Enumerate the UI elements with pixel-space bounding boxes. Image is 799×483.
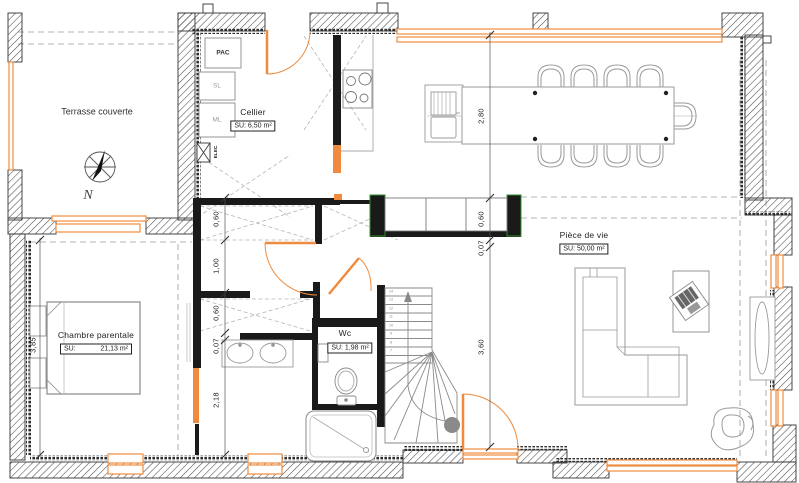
dining-table xyxy=(427,87,697,144)
room-label-cellier: Cellier xyxy=(240,107,266,117)
area-badge-bedroom: SU: 21,13 m² xyxy=(60,344,132,355)
stair-tread-number: 13 xyxy=(389,298,393,302)
burner xyxy=(360,94,368,102)
dim-wall-r: 0,07 xyxy=(477,240,486,256)
pac-label: PAC xyxy=(216,50,229,57)
plan-graphics xyxy=(0,0,799,483)
armchair-sketch xyxy=(711,408,753,450)
dim-bath: 2,18 xyxy=(212,392,221,408)
stair-tread-number: 14 xyxy=(389,290,393,294)
nightstand xyxy=(30,358,46,388)
kitchen-sliding-door xyxy=(333,145,341,173)
tv-screen xyxy=(755,302,769,374)
nightstand xyxy=(30,306,46,336)
burner xyxy=(359,73,371,85)
area-badge-living: SU: 50,00 m² xyxy=(559,244,608,255)
wardrobe xyxy=(385,198,507,231)
stair-tread-number: 7 xyxy=(390,349,392,353)
kitchen-island-sink xyxy=(425,85,463,142)
dim-hall-2: 1,00 xyxy=(212,258,221,274)
dim-bedroom: 3,85 xyxy=(29,337,38,353)
dim-hall-4: 0,07 xyxy=(212,338,221,354)
room-label-living: Pièce de vie xyxy=(560,230,609,240)
room-label-wc: Wc xyxy=(339,328,352,338)
compass-icon xyxy=(84,150,116,182)
burner xyxy=(346,92,357,103)
elec-label: ELEC xyxy=(214,146,219,159)
kitchen xyxy=(341,35,373,151)
stair-tread-number: 10 xyxy=(389,324,393,328)
ceiling-cross-marks xyxy=(198,36,505,331)
stairs-up-arrow xyxy=(404,291,412,302)
exterior-walls xyxy=(8,13,796,482)
dim-hall-3: 0,60 xyxy=(212,305,221,321)
area-badge-wc: SU: 1,98 m² xyxy=(327,343,372,354)
bathroom-vanity xyxy=(222,340,293,367)
stair-tread-number: 9 xyxy=(390,332,392,336)
area-badge-prefix: SU: xyxy=(64,346,76,353)
dim-wardrobe: 0,60 xyxy=(477,211,486,227)
burner xyxy=(347,77,356,86)
drain xyxy=(364,448,369,453)
floor-plan: Terrasse couverte N PAC SL ML ELEC Celli… xyxy=(0,0,799,483)
bedroom-sliding-door xyxy=(193,368,199,423)
elec-panel xyxy=(197,143,210,162)
sl-label: SL xyxy=(213,83,221,90)
room-label-terrace: Terrasse couverte xyxy=(61,106,133,117)
dim-kitchen: 2,80 xyxy=(477,108,486,124)
pocket-door-guide xyxy=(187,303,190,362)
area-badge-cellier: SU: 6,50 m² xyxy=(230,121,275,132)
sofa xyxy=(575,268,687,405)
ml-label: ML xyxy=(212,117,221,124)
stair-tread-number: 11 xyxy=(389,315,393,319)
stair-tread-number: 8 xyxy=(390,341,392,345)
dim-living: 3,60 xyxy=(477,339,486,355)
room-label-bedroom: Chambre parentale xyxy=(58,330,134,340)
compass-north-label: N xyxy=(83,188,92,204)
stairs xyxy=(385,288,460,443)
dim-hall-1: 0,60 xyxy=(212,211,221,227)
area-badge-value: 21,13 m² xyxy=(100,346,128,353)
tv-unit xyxy=(750,297,775,380)
shower xyxy=(306,411,376,461)
stair-tread-number: 12 xyxy=(389,307,393,311)
newel-post xyxy=(444,417,460,433)
